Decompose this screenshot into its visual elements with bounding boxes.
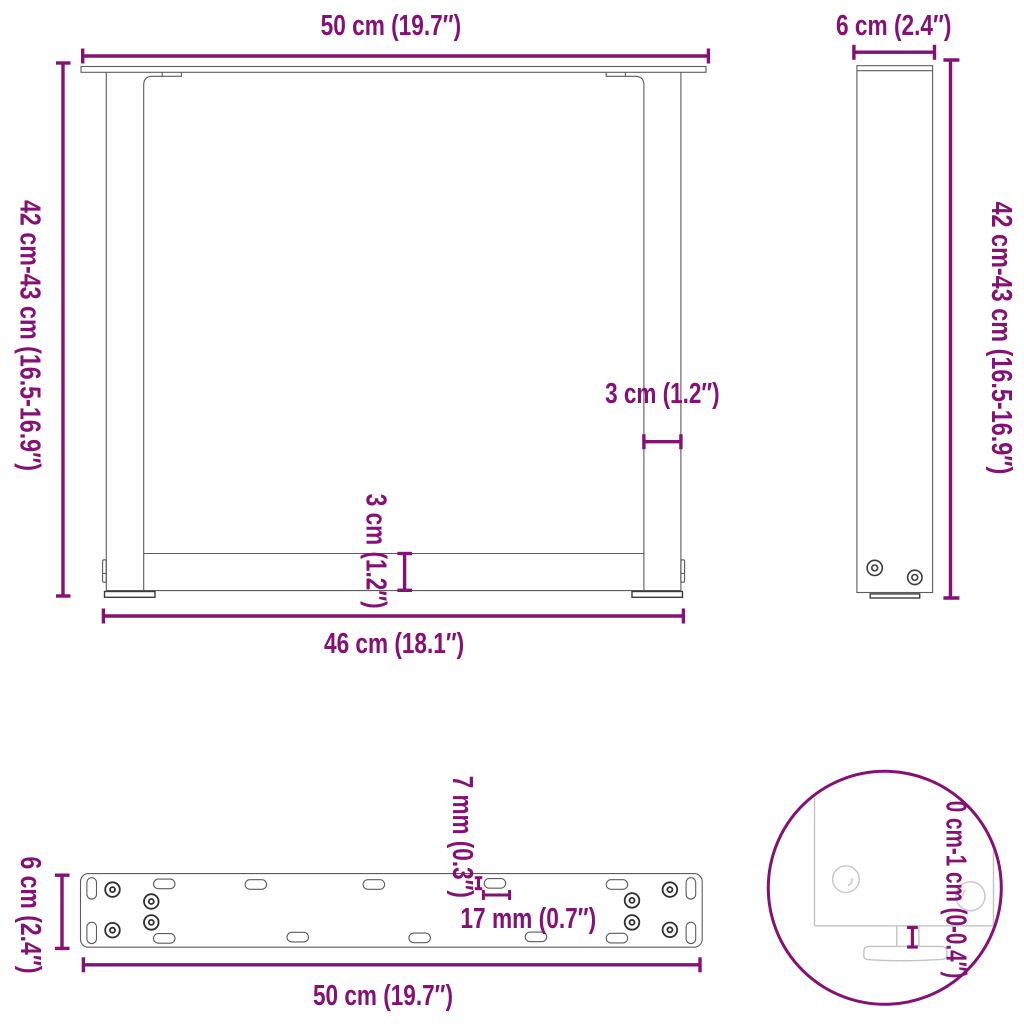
- svg-text:50 cm (19.7″): 50 cm (19.7″): [313, 980, 453, 1012]
- svg-text:6 cm (2.4″): 6 cm (2.4″): [14, 857, 46, 974]
- svg-text:0 cm-1 cm (0-0.4″): 0 cm-1 cm (0-0.4″): [939, 801, 971, 979]
- svg-text:46 cm (18.1″): 46 cm (18.1″): [324, 628, 464, 660]
- svg-text:6 cm (2.4″): 6 cm (2.4″): [836, 10, 951, 42]
- svg-text:3 cm (1.2″): 3 cm (1.2″): [360, 494, 392, 609]
- svg-text:42 cm-43 cm (16.5-16.9″): 42 cm-43 cm (16.5-16.9″): [13, 200, 45, 471]
- svg-text:7 mm (0.3″): 7 mm (0.3″): [446, 776, 478, 898]
- svg-text:42 cm-43 cm (16.5-16.9″): 42 cm-43 cm (16.5-16.9″): [985, 202, 1017, 475]
- svg-text:3 cm (1.2″): 3 cm (1.2″): [605, 378, 720, 410]
- svg-text:17 mm (0.7″): 17 mm (0.7″): [460, 903, 596, 935]
- svg-text:50 cm (19.7″): 50 cm (19.7″): [321, 10, 462, 42]
